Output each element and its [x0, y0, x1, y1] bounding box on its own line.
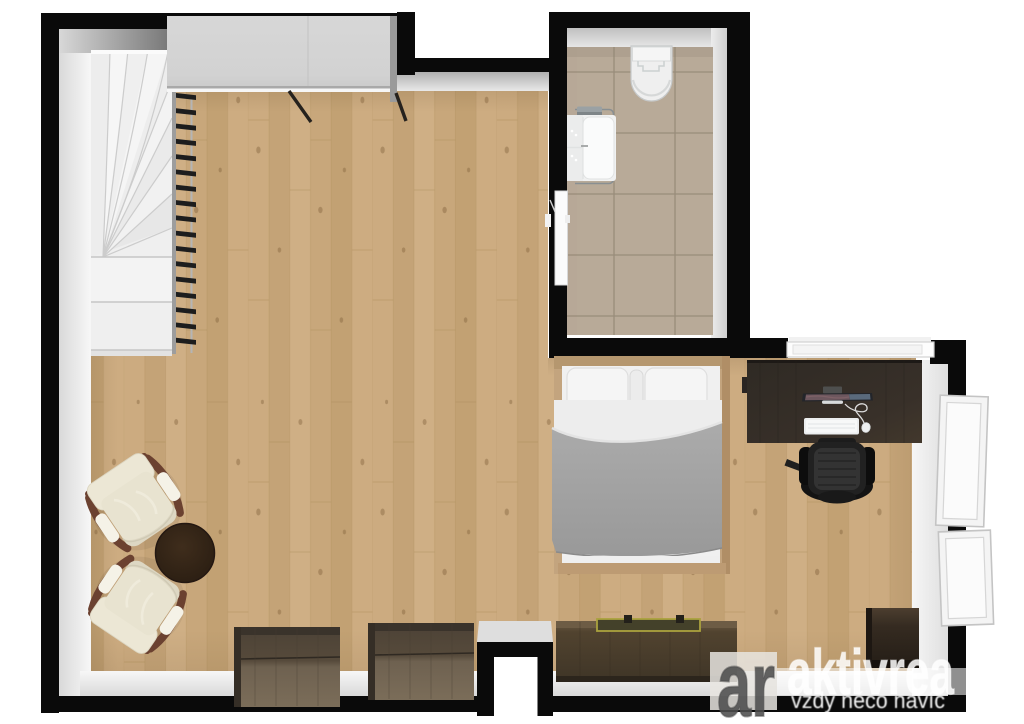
svg-text:ar: ar: [717, 634, 775, 724]
svg-text:vždy něco navíc: vždy něco navíc: [791, 687, 945, 713]
